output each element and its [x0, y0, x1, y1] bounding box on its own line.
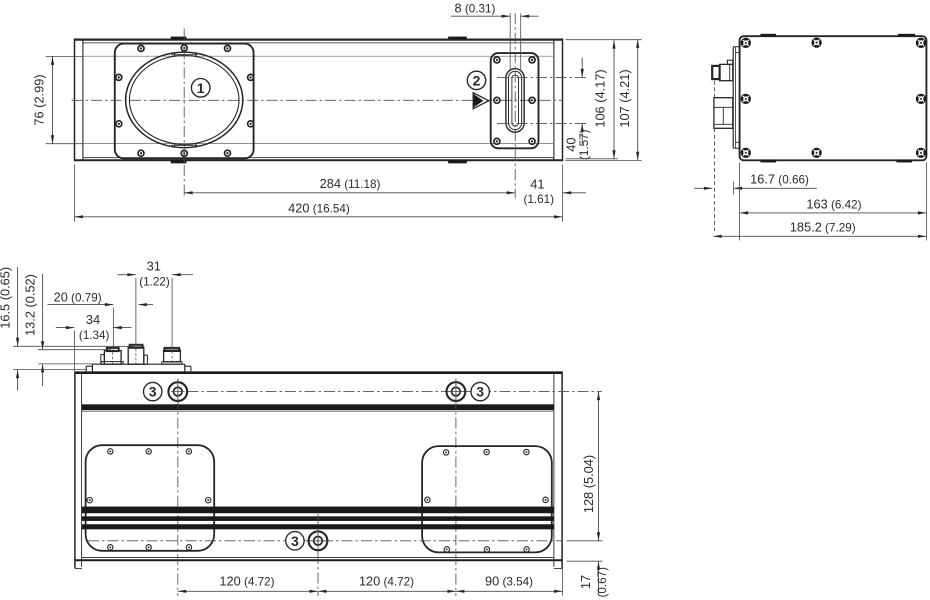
- svg-text:3: 3: [476, 384, 484, 400]
- svg-text:76 (2.99): 76 (2.99): [32, 74, 47, 125]
- svg-text:120 (4.72): 120 (4.72): [219, 574, 274, 589]
- svg-text:13.2 (0.52): 13.2 (0.52): [23, 274, 38, 336]
- svg-text:16.5 (0.65): 16.5 (0.65): [0, 267, 13, 329]
- svg-text:16.7 (0.66): 16.7 (0.66): [750, 171, 809, 186]
- svg-text:163 (6.42): 163 (6.42): [806, 196, 861, 211]
- svg-text:8 (0.31): 8 (0.31): [455, 1, 496, 16]
- svg-text:2: 2: [473, 72, 481, 88]
- svg-text:41: 41: [530, 177, 544, 192]
- svg-text:106 (4.17): 106 (4.17): [593, 69, 608, 127]
- svg-text:120 (4.72): 120 (4.72): [359, 574, 414, 589]
- svg-text:3: 3: [149, 384, 157, 400]
- svg-text:284 (11.18): 284 (11.18): [320, 176, 381, 191]
- svg-text:17: 17: [578, 575, 593, 589]
- svg-text:20 (0.79): 20 (0.79): [54, 289, 102, 304]
- svg-text:420 (16.54): 420 (16.54): [288, 200, 350, 215]
- svg-text:128 (5.04): 128 (5.04): [581, 455, 596, 513]
- svg-text:(1.57): (1.57): [578, 129, 591, 160]
- svg-text:(1.61): (1.61): [524, 193, 555, 206]
- svg-text:1: 1: [197, 80, 205, 96]
- svg-text:107 (4.21): 107 (4.21): [617, 69, 632, 127]
- svg-text:3: 3: [291, 533, 299, 549]
- svg-text:34: 34: [86, 312, 100, 327]
- svg-text:(0.67): (0.67): [596, 567, 609, 598]
- svg-text:90 (3.54): 90 (3.54): [485, 574, 533, 589]
- svg-text:(1.34): (1.34): [79, 329, 110, 342]
- svg-text:185.2 (7.29): 185.2 (7.29): [790, 219, 856, 234]
- svg-text:31: 31: [147, 258, 161, 273]
- svg-text:(1.22): (1.22): [139, 275, 170, 288]
- svg-text:40: 40: [564, 137, 579, 151]
